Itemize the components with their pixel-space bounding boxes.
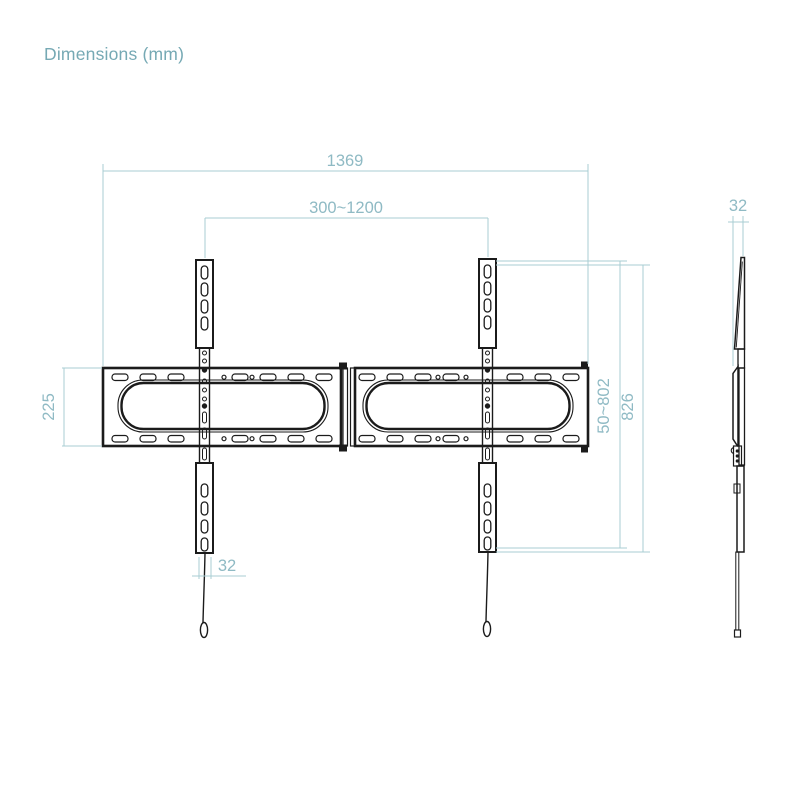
side-hook-detail	[731, 446, 741, 466]
dim-vesa-height-label: 50~802	[595, 378, 613, 434]
left-bracket-arm	[196, 260, 213, 638]
dim-bracket-height-label: 826	[619, 393, 637, 421]
dim-vesa-width	[205, 218, 488, 258]
dim-depth-label: 32	[729, 197, 747, 215]
right-bracket-arm	[479, 259, 496, 637]
front-view-drawing	[103, 259, 588, 638]
rail-slot-row-bottom	[112, 436, 579, 443]
dim-plate-height-label: 225	[40, 393, 58, 421]
dim-overall-width-label: 1369	[327, 152, 364, 170]
dim-arm-width-label: 32	[218, 557, 236, 575]
technical-drawing: 1369 300~1200 225 50~802	[0, 0, 800, 800]
dim-plate-height	[62, 368, 102, 446]
dim-vesa-width-label: 300~1200	[309, 199, 383, 217]
diagram-canvas: Dimensions (mm)	[0, 0, 800, 800]
wall-plate-rail	[103, 362, 588, 453]
